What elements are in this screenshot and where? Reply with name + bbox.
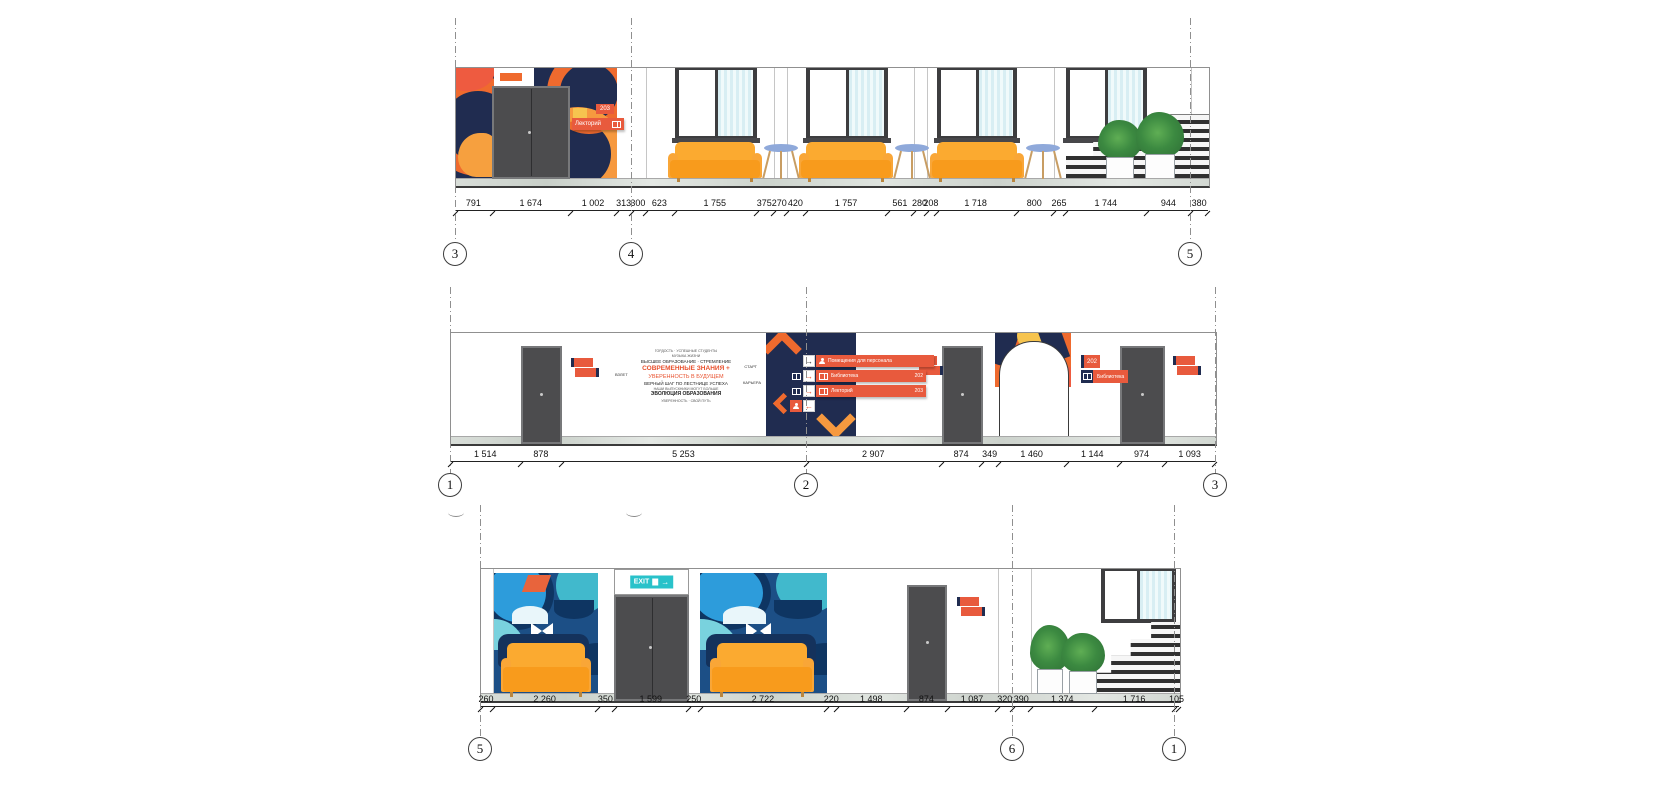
dimension-value: 1 674 xyxy=(520,199,543,208)
sign-label-bar: Библиотека xyxy=(1081,370,1128,383)
elevation-middle-wall: ГОРДОСТЬ · УСПЕШНЫЕ СТУДЕНТЫ МУЗЫКА ЖИЗН… xyxy=(450,332,1217,446)
dimension-segment: 270 xyxy=(773,196,786,210)
mural-shape xyxy=(774,600,822,619)
mural-shape xyxy=(723,606,766,624)
dimension-row-bottom: 2602 2603501 5992502 7222201 4988741 087… xyxy=(480,692,1179,707)
dimension-segment: 208 xyxy=(926,196,936,210)
dimension-value: 390 xyxy=(1014,695,1029,704)
grid-axis-line xyxy=(1215,287,1216,473)
dimension-segment: 349 xyxy=(981,447,997,461)
door xyxy=(907,585,947,701)
window xyxy=(1101,569,1176,623)
window-pane xyxy=(810,70,846,136)
dimension-segment: 350 xyxy=(597,692,613,706)
dimension-segment: 791 xyxy=(455,196,492,210)
sofa-seat xyxy=(503,667,589,692)
sign-bar xyxy=(1177,366,1201,375)
word-cloud-line: МУЗЫКА ЖИЗНИ xyxy=(672,354,701,358)
window-pane-glass xyxy=(976,70,1014,136)
grid-marker: 3 xyxy=(443,242,467,266)
exit-door-header: EXIT → xyxy=(614,569,689,595)
dimension-segment: 260 xyxy=(480,692,492,706)
wayfinding-bar: Лекторий 203 xyxy=(816,385,926,397)
dimension-segment: 313 xyxy=(616,196,631,210)
side-table xyxy=(764,144,798,180)
grid-marker-label: 1 xyxy=(1171,741,1178,757)
dimension-segment: 974 xyxy=(1119,447,1164,461)
dimension-segment: 1 599 xyxy=(614,692,688,706)
dimension-row-middle: 1 5148785 2532 9078743491 4601 1449741 0… xyxy=(450,447,1215,462)
sign-bar xyxy=(957,597,979,606)
sign-room-tab: 202 xyxy=(1081,355,1100,368)
book-icon-chip xyxy=(1081,370,1093,383)
mural-shape xyxy=(512,606,548,624)
dimension-segment: 1 718 xyxy=(936,196,1016,210)
book-icon xyxy=(792,373,801,380)
arrow-right-icon: → xyxy=(803,385,815,397)
dimension-value: 974 xyxy=(1134,450,1149,459)
dimension-segment: 1 374 xyxy=(1030,692,1094,706)
word-cloud-line: ГОРДОСТЬ · УСПЕШНЫЕ СТУДЕНТЫ xyxy=(655,349,717,353)
dimension-value: 874 xyxy=(954,450,969,459)
grid-marker: 3 xyxy=(1203,473,1227,497)
word-cloud-line: ВЗЛЕТ xyxy=(615,373,628,378)
word-cloud-line: УВЕРЕННОСТЬ В БУДУЩЕМ xyxy=(648,374,723,380)
dimension-value: 375 xyxy=(757,199,772,208)
potted-plant xyxy=(1102,120,1138,179)
dimension-value: 1 144 xyxy=(1081,450,1104,459)
window-pane xyxy=(1105,571,1137,619)
word-cloud-line: УВЕРЕННОСТЬ · СВОЙ ПУТЬ xyxy=(661,399,710,403)
double-door xyxy=(492,86,570,179)
dimension-segment: 1 087 xyxy=(947,692,998,706)
wayfinding-label: Лекторий xyxy=(831,388,853,394)
grid-marker: 4 xyxy=(619,242,643,266)
sign-bar xyxy=(961,607,985,616)
dimension-segment: 2 722 xyxy=(700,692,827,706)
plant-leaves xyxy=(1061,633,1104,674)
grid-axis-line xyxy=(806,287,807,473)
table-leg xyxy=(1024,151,1033,179)
sofa-leg xyxy=(808,178,811,182)
wall-joint xyxy=(493,569,494,694)
grid-axis-line xyxy=(631,18,632,242)
grid-marker: 1 xyxy=(438,473,462,497)
wall-joint xyxy=(646,68,647,179)
mural-shape xyxy=(816,399,856,437)
dimension-segment: 1 744 xyxy=(1065,196,1146,210)
grid-axis-line xyxy=(1190,18,1191,242)
arrow-right-icon: → xyxy=(661,578,669,587)
dimension-segment: 874 xyxy=(941,447,982,461)
grid-marker-label: 3 xyxy=(1212,477,1219,493)
door xyxy=(521,346,562,444)
table-leg xyxy=(1042,151,1044,179)
word-cloud-mural: ГОРДОСТЬ · УСПЕШНЫЕ СТУДЕНТЫ МУЗЫКА ЖИЗН… xyxy=(619,341,753,411)
grid-axis-line xyxy=(1012,505,1013,737)
word-cloud-line: КАРЬЕРА xyxy=(743,381,761,386)
sofa-leg xyxy=(881,178,884,182)
arch-opening xyxy=(999,341,1069,438)
dimension-segment: 300 xyxy=(631,196,645,210)
dimension-value: 1 087 xyxy=(961,695,984,704)
table-leg xyxy=(1053,151,1062,179)
dimension-value: 350 xyxy=(598,695,613,704)
grid-axis-line xyxy=(480,505,481,737)
person-icon xyxy=(819,358,825,364)
person-icon xyxy=(793,403,799,409)
grid-axis-line xyxy=(1174,505,1175,737)
plant-pot xyxy=(1069,671,1096,694)
wayfinding-row: → Лекторий 203 xyxy=(790,385,926,397)
grid-marker-label: 5 xyxy=(477,741,484,757)
grid-axis-line xyxy=(455,18,456,242)
arrow-left-icon: ← xyxy=(803,400,815,412)
stray-arc-mark xyxy=(448,508,464,517)
dimension-value: 2 907 xyxy=(862,450,885,459)
window-pane-glass xyxy=(715,70,754,136)
window-pane-glass xyxy=(1137,571,1172,619)
dimension-value: 270 xyxy=(772,199,787,208)
grid-marker: 5 xyxy=(468,737,492,761)
book-icon xyxy=(1083,373,1092,380)
sofa xyxy=(799,142,893,182)
dimension-value: 1 002 xyxy=(582,199,605,208)
wayfinding-row: ← xyxy=(790,400,816,412)
dimension-segment: 250 xyxy=(688,692,700,706)
dimension-row-top: 7911 6741 0023133006231 7553752704201 75… xyxy=(455,196,1208,211)
grid-marker: 5 xyxy=(1178,242,1202,266)
sign-bar xyxy=(575,368,599,377)
book-icon-chip xyxy=(790,370,802,382)
room-sign: Лекторий xyxy=(572,118,624,130)
grid-marker: 1 xyxy=(1162,737,1186,761)
window-pane xyxy=(679,70,715,136)
exit-door-icon xyxy=(652,579,658,586)
dimension-value: 380 xyxy=(1192,199,1207,208)
grid-marker: 2 xyxy=(794,473,818,497)
word-cloud-line: ВЫСШЕЕ ОБРАЗОВАНИЕ · СТРЕМЛЕНИЕ xyxy=(641,359,731,364)
dimension-value: 313 xyxy=(616,199,631,208)
dimension-segment: 878 xyxy=(520,447,561,461)
dimension-value: 300 xyxy=(630,199,645,208)
mural-shape xyxy=(573,108,587,118)
sign-bar xyxy=(571,358,593,367)
dimension-segment: 5 253 xyxy=(561,447,805,461)
word-cloud-line: СОВРЕМЕННЫЕ ЗНАНИЯ + xyxy=(642,365,730,372)
table-leg xyxy=(911,151,913,179)
plant-leaves xyxy=(1136,112,1184,158)
dimension-segment: 1 144 xyxy=(1066,447,1119,461)
dimension-segment: 1 514 xyxy=(450,447,520,461)
book-icon xyxy=(819,373,828,380)
dimension-segment: 944 xyxy=(1146,196,1190,210)
plant-pot xyxy=(1145,154,1175,179)
dimension-value: 623 xyxy=(652,199,667,208)
dimension-segment: 265 xyxy=(1053,196,1065,210)
dimension-value: 5 253 xyxy=(672,450,695,459)
sofa xyxy=(930,142,1024,182)
dimension-value: 320 xyxy=(997,695,1012,704)
mural-shape xyxy=(554,600,594,619)
room-number-badge: 203 xyxy=(596,104,614,114)
dimension-segment: 2 260 xyxy=(492,692,597,706)
room-number: 202 xyxy=(1084,355,1100,368)
exit-sign: EXIT → xyxy=(630,576,674,589)
dimension-segment: 800 xyxy=(1016,196,1053,210)
dimension-segment: 1 460 xyxy=(998,447,1066,461)
dimension-segment: 874 xyxy=(906,692,947,706)
potted-plant xyxy=(1065,633,1101,694)
dimension-segment: 623 xyxy=(645,196,674,210)
elevation-bottom-wall: EXIT → xyxy=(480,568,1181,703)
window-pane xyxy=(941,70,976,136)
dimension-segment: 1 757 xyxy=(805,196,887,210)
sofa xyxy=(501,643,591,697)
window-pane-glass xyxy=(846,70,885,136)
sofa-leg xyxy=(677,178,680,182)
wayfinding-room-number: 202 xyxy=(912,373,923,379)
elevation-drawing-canvas: 203 Лекторий xyxy=(0,0,1680,798)
dimension-segment: 1 755 xyxy=(674,196,756,210)
table-leg xyxy=(762,151,771,179)
grid-marker-label: 2 xyxy=(803,477,810,493)
dimension-segment: 375 xyxy=(756,196,773,210)
window xyxy=(675,68,757,140)
person-icon-chip xyxy=(790,400,802,412)
table-leg xyxy=(893,151,902,179)
wayfinding-bar: Библиотека 202 xyxy=(816,370,926,382)
mural-shape xyxy=(500,73,522,81)
wall-joint xyxy=(998,569,999,694)
dimension-value: 944 xyxy=(1161,199,1176,208)
dimension-value: 105 xyxy=(1169,695,1184,704)
dimension-segment: 1 093 xyxy=(1164,447,1215,461)
sofa-seat xyxy=(712,667,812,692)
dimension-segment: 1 674 xyxy=(492,196,570,210)
dimension-value: 800 xyxy=(1027,199,1042,208)
wayfinding-label: Помещения для персонала xyxy=(828,358,892,364)
sign-bar xyxy=(1173,356,1195,365)
grid-axis-line xyxy=(450,287,451,473)
wayfinding-row: → Библиотека 202 xyxy=(790,370,926,382)
dimension-segment: 380 xyxy=(1190,196,1208,210)
dimension-segment: 2 907 xyxy=(806,447,941,461)
dimension-value: 874 xyxy=(919,695,934,704)
room-sign-label: Лекторий xyxy=(575,121,601,127)
sofa-leg xyxy=(1012,178,1015,182)
wayfinding-room-number: 203 xyxy=(912,388,923,394)
sofa xyxy=(668,142,762,182)
sofa-seat xyxy=(801,160,891,179)
dimension-value: 878 xyxy=(533,450,548,459)
sofa-seat xyxy=(670,160,760,179)
door-sign xyxy=(571,358,597,379)
side-table xyxy=(895,144,929,180)
dimension-segment: 1 498 xyxy=(836,692,906,706)
dimension-segment: 220 xyxy=(826,692,836,706)
dimension-value: 1 744 xyxy=(1095,199,1118,208)
window xyxy=(937,68,1017,140)
elevation-top-wall: 203 Лекторий xyxy=(455,67,1210,188)
wayfinding-label: Библиотека xyxy=(831,373,858,379)
dimension-segment: 420 xyxy=(786,196,806,210)
dimension-value: 1 514 xyxy=(474,450,497,459)
library-sign: 202 Библиотека xyxy=(1081,355,1131,385)
book-icon xyxy=(612,121,621,128)
plant-pot xyxy=(1106,157,1133,179)
window-pane xyxy=(1070,70,1105,136)
dimension-value: 2 722 xyxy=(752,695,775,704)
exit-sign-label: EXIT xyxy=(634,579,650,586)
wayfinding-bar: Помещения для персонала xyxy=(816,355,934,367)
dimension-value: 2 260 xyxy=(533,695,556,704)
dimension-value: 1 757 xyxy=(835,199,858,208)
sign-label: Библиотека xyxy=(1093,370,1128,383)
marble-baseboard xyxy=(451,436,1216,444)
sofa-leg xyxy=(939,178,942,182)
mural-shape xyxy=(766,333,802,369)
grid-marker: 6 xyxy=(1000,737,1024,761)
dimension-value: 561 xyxy=(892,199,907,208)
sofa xyxy=(710,643,814,697)
door-sign xyxy=(957,597,983,618)
potted-plant xyxy=(1140,112,1180,179)
dimension-value: 1 599 xyxy=(639,695,662,704)
dimension-value: 1 460 xyxy=(1020,450,1043,459)
dimension-value: 1 755 xyxy=(703,199,726,208)
arrow-right-icon: → xyxy=(803,355,815,367)
dimension-value: 1 716 xyxy=(1123,695,1146,704)
dimension-segment: 390 xyxy=(1012,692,1030,706)
grid-marker-label: 5 xyxy=(1187,246,1194,262)
dimension-value: 791 xyxy=(466,199,481,208)
book-icon-chip xyxy=(790,385,802,397)
dimension-value: 1 718 xyxy=(964,199,987,208)
sofa-seat xyxy=(932,160,1022,179)
wayfinding-row: → Помещения для персонала xyxy=(803,355,934,367)
dimension-segment: 1 716 xyxy=(1094,692,1174,706)
dimension-value: 1 374 xyxy=(1051,695,1074,704)
word-cloud-line: ВЕРНЫЙ ШАГ ПО ЛЕСТНИЦЕ УСПЕХА xyxy=(644,381,728,386)
wall-joint xyxy=(1031,569,1032,694)
dimension-segment: 320 xyxy=(997,692,1012,706)
plant-pot xyxy=(1037,669,1063,694)
dimension-value: 1 498 xyxy=(860,695,883,704)
grid-marker-label: 6 xyxy=(1009,741,1016,757)
word-cloud-line: СТАРТ xyxy=(744,365,757,370)
window xyxy=(806,68,888,140)
grid-marker-label: 1 xyxy=(447,477,454,493)
dimension-segment: 561 xyxy=(887,196,913,210)
double-door-exit xyxy=(614,595,689,701)
dimension-value: 1 093 xyxy=(1178,450,1201,459)
door xyxy=(942,346,983,444)
dimension-value: 420 xyxy=(788,199,803,208)
book-icon xyxy=(819,388,828,395)
table-leg xyxy=(780,151,782,179)
side-table xyxy=(1026,144,1060,180)
sofa-leg xyxy=(750,178,753,182)
arrow-right-icon: → xyxy=(803,370,815,382)
stray-arc-mark xyxy=(626,508,642,517)
grid-marker-label: 3 xyxy=(452,246,459,262)
book-icon xyxy=(792,388,801,395)
dimension-value: 349 xyxy=(982,450,997,459)
dimension-segment: 1 002 xyxy=(570,196,617,210)
grid-marker-label: 4 xyxy=(628,246,635,262)
door-sign xyxy=(1173,356,1199,377)
word-cloud-line: ЭВОЛЮЦИЯ ОБРАЗОВАНИЯ xyxy=(651,392,721,398)
